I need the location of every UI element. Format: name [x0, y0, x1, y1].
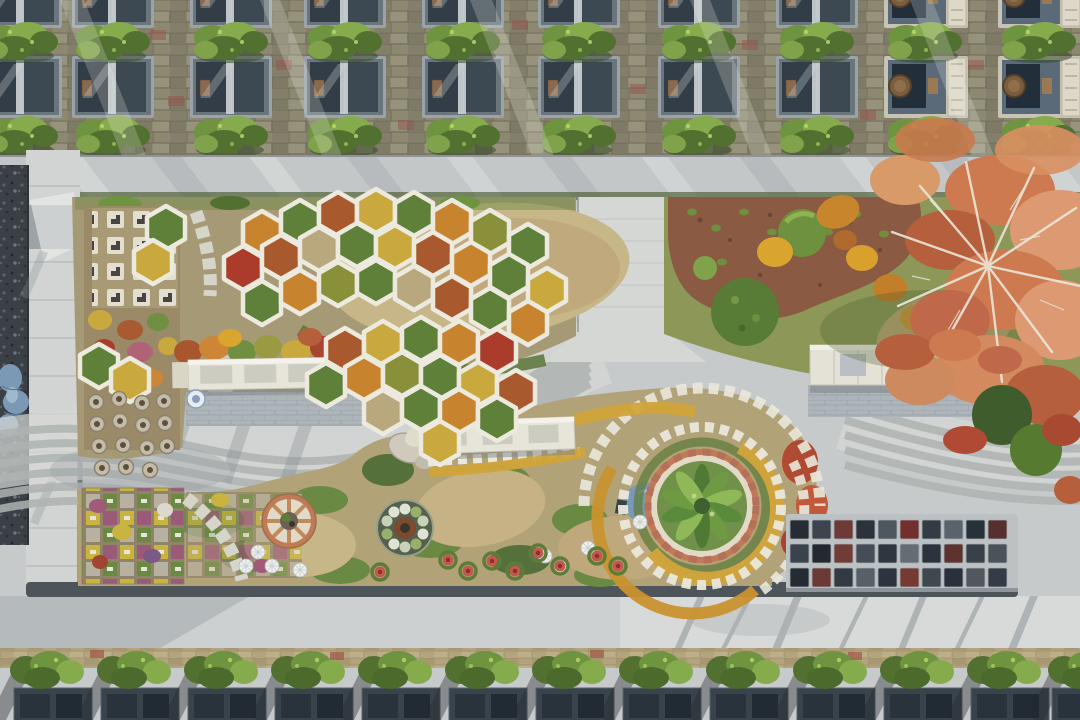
terracotta-wheel-planter [262, 494, 316, 548]
granite-marker-area [786, 514, 1018, 592]
memorial-garden-scene [0, 0, 1080, 720]
aerial-photo-memorial-garden [0, 0, 1080, 720]
porcelain-jar [187, 390, 205, 408]
mosaic-plate-table [377, 500, 433, 556]
